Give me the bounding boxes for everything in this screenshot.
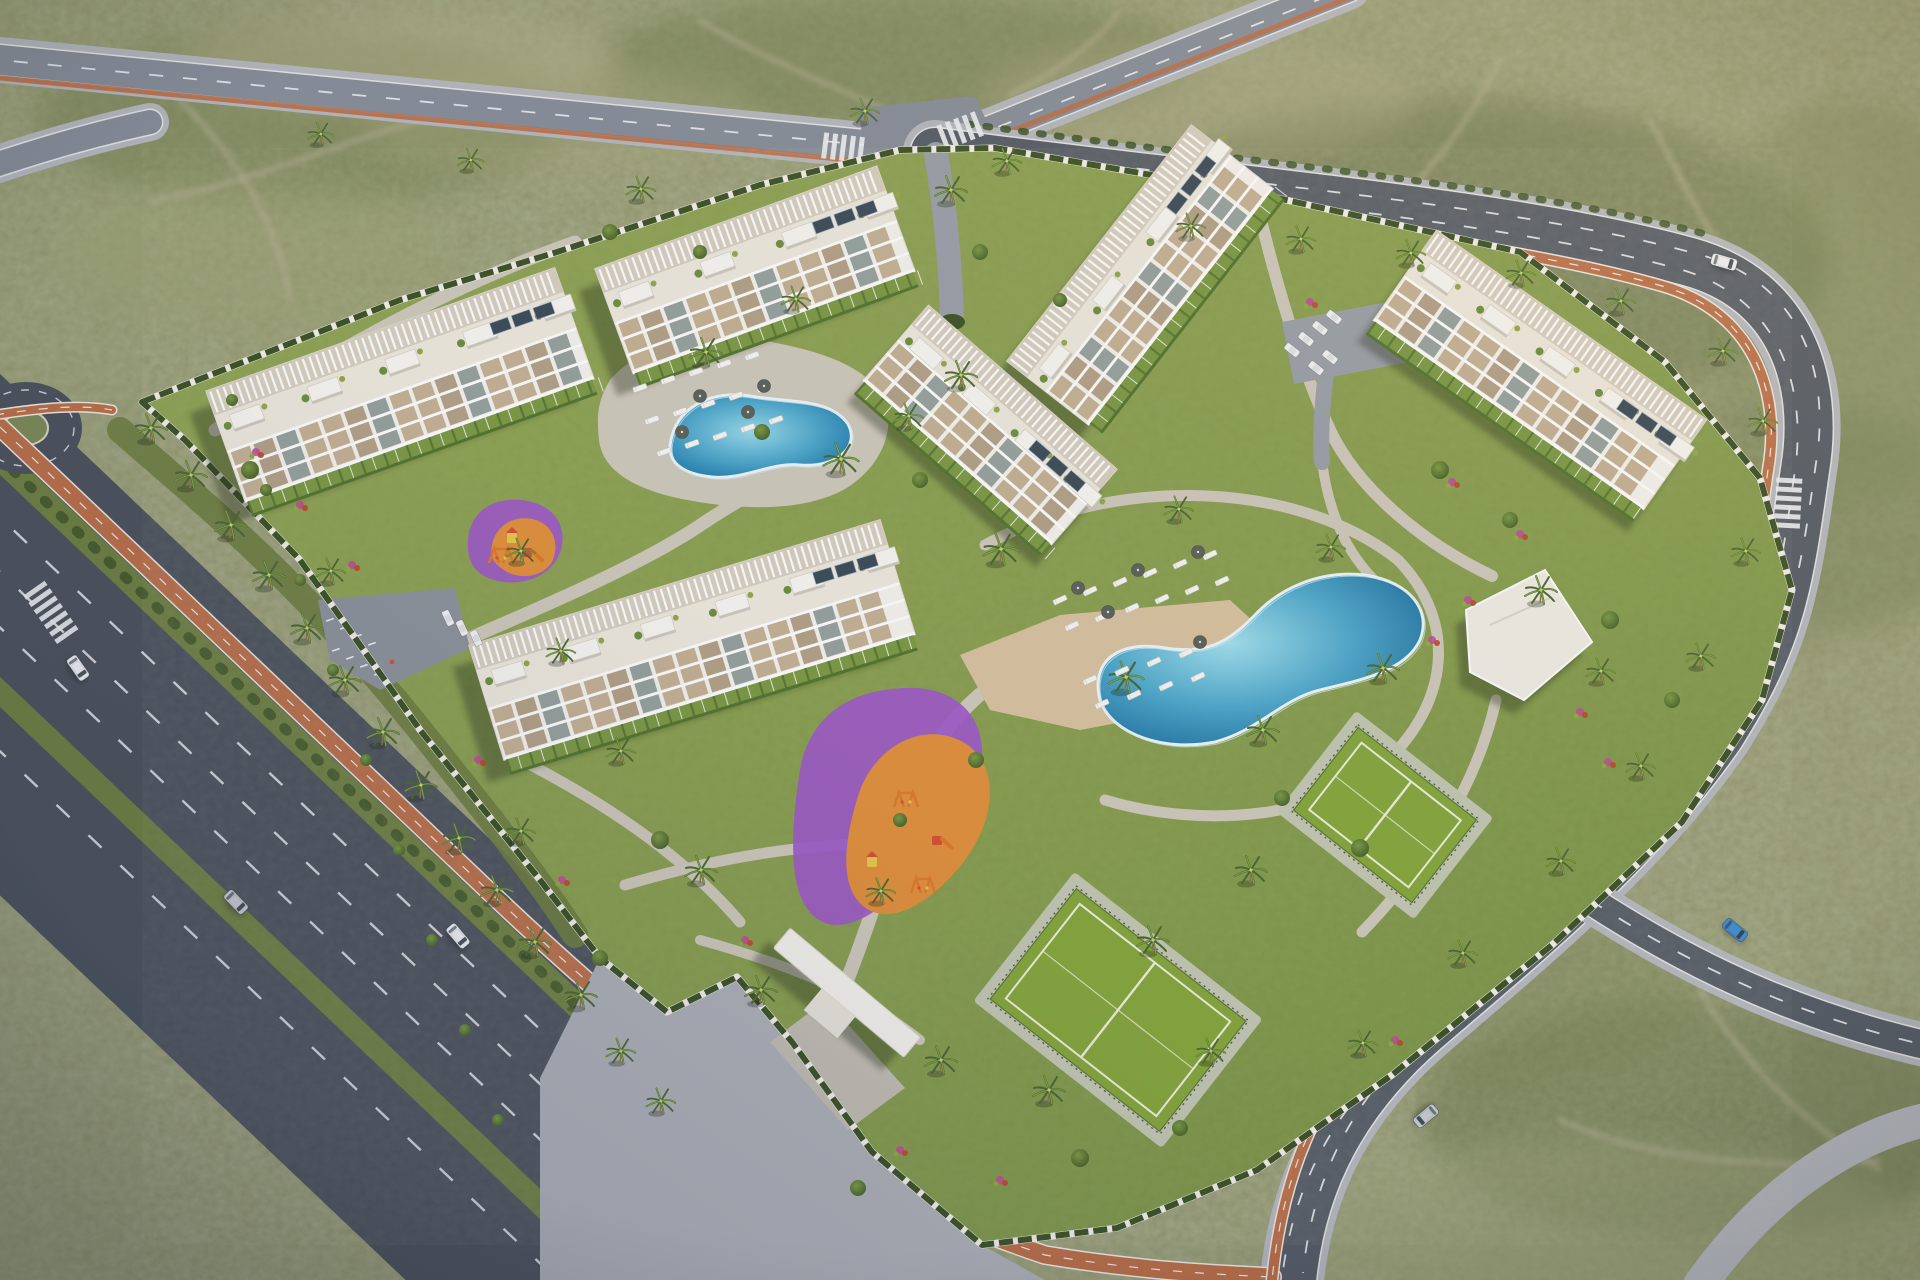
aerial-render: [0, 0, 1920, 1280]
scene-canvas: [0, 0, 1920, 1280]
vignette-overlay: [0, 0, 1920, 1280]
